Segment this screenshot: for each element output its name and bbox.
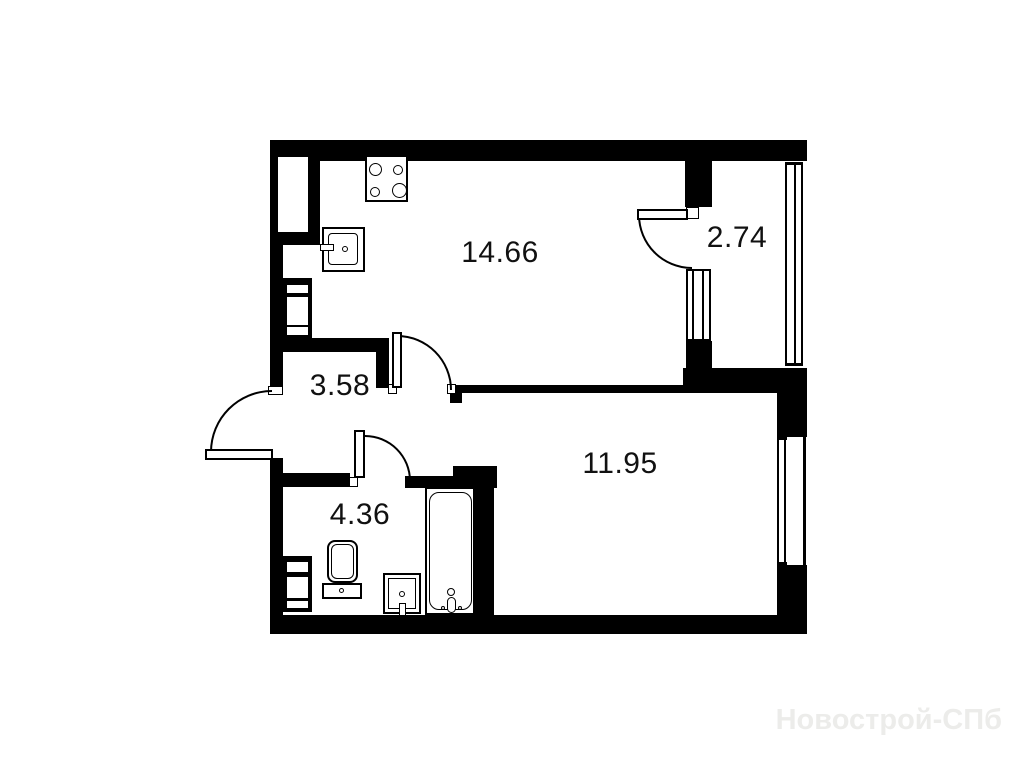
room-area-label-room: 11.95 xyxy=(582,447,657,481)
stove-burner xyxy=(369,163,382,176)
balcony-window-frame xyxy=(686,269,711,341)
room-window-outer-edge xyxy=(803,437,806,565)
vent-duct-slot xyxy=(287,297,308,325)
toilet-button xyxy=(339,588,344,593)
entrance-door-arc xyxy=(210,390,272,452)
stove-burner xyxy=(370,187,380,197)
wall-balcony-bottom xyxy=(683,368,807,393)
wall-balcony-divider-bottom xyxy=(686,341,712,368)
kitchen-sink-faucet xyxy=(320,244,334,251)
room-area-label-hallway: 3.58 xyxy=(310,369,370,403)
balcony-glazing-line xyxy=(801,162,803,366)
vent-duct-slot xyxy=(287,285,308,293)
wall-bath-right xyxy=(473,466,494,618)
wall-hall-right xyxy=(376,338,389,388)
wall-bottom xyxy=(270,615,807,634)
entrance-door-leaf xyxy=(205,449,273,460)
bathtub-drain xyxy=(447,588,455,596)
vent-duct-slot xyxy=(287,577,308,598)
bathtub-tap-dot xyxy=(441,606,445,610)
bathroom-door-jamb xyxy=(349,477,358,487)
floor-plan: 14.66 2.74 3.58 11.95 4.36 Новострой-СПб xyxy=(0,0,1013,768)
bathroom-door-arc xyxy=(365,435,411,481)
balcony-glazing-cap xyxy=(785,363,803,366)
vent-duct-slot xyxy=(287,327,308,335)
wall-stub-kitchen-door xyxy=(450,393,462,403)
wall-shaft-column xyxy=(308,155,320,237)
balcony-glazing-cap xyxy=(785,162,803,165)
stove-burner xyxy=(393,165,403,175)
room-window-pane xyxy=(777,437,779,565)
room-area-label-bathroom: 4.36 xyxy=(330,498,390,532)
balcony-door-arc xyxy=(638,215,692,269)
washbasin-drain xyxy=(399,591,405,597)
watermark: Новострой-СПб xyxy=(772,704,1002,737)
kitchen-door-leaf xyxy=(392,332,402,388)
wall-bath-top-left xyxy=(282,473,350,487)
bathtub-tap-dot xyxy=(458,606,462,610)
bathroom-door-leaf xyxy=(354,430,365,478)
room-window-cap xyxy=(777,562,787,565)
balcony-glazing-line xyxy=(785,162,787,366)
balcony-window-pane xyxy=(692,271,694,339)
stove-burner xyxy=(392,183,407,198)
kitchen-door-arc xyxy=(397,335,452,390)
wall-hall-top xyxy=(283,338,388,352)
balcony-door-leaf xyxy=(637,209,688,220)
balcony-glazing-line xyxy=(794,162,796,366)
wall-balcony-divider-top xyxy=(685,140,712,207)
wall-kitchen-room xyxy=(456,385,690,393)
toilet-bowl xyxy=(331,544,354,579)
wall-shaft-bottom xyxy=(270,232,320,245)
room-window-cap xyxy=(777,437,787,440)
room-area-label-balcony: 2.74 xyxy=(707,221,767,255)
kitchen-sink-drain xyxy=(342,246,348,252)
vent-duct-slot xyxy=(287,562,308,572)
washbasin-faucet xyxy=(399,603,406,616)
vent-shaft-interior xyxy=(278,157,308,232)
room-area-label-kitchen: 14.66 xyxy=(461,236,539,270)
wall-top xyxy=(270,140,807,161)
room-window-pane xyxy=(784,437,786,565)
vent-duct-slot xyxy=(287,601,308,608)
bathtub-faucet xyxy=(447,597,456,613)
wall-right-upper xyxy=(777,393,807,437)
balcony-window-pane xyxy=(702,271,704,339)
